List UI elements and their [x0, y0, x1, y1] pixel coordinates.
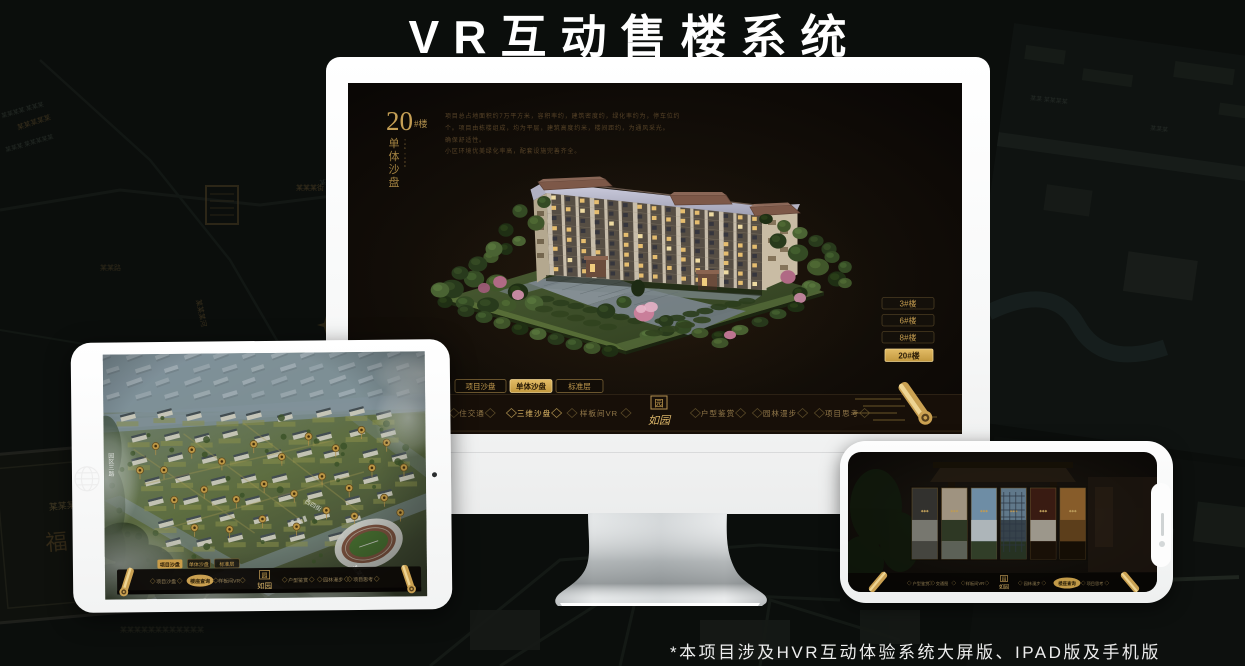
svg-text:样板间VR: 样板间VR — [218, 578, 240, 585]
svg-text:楼座查询: 楼座查询 — [190, 578, 210, 585]
svg-text:某某路: 某某路 — [100, 263, 121, 272]
svg-text:单体沙盘: 单体沙盘 — [189, 561, 209, 568]
svg-text:8#楼: 8#楼 — [900, 333, 917, 343]
svg-text:6#楼: 6#楼 — [900, 316, 917, 326]
svg-text:标准层: 标准层 — [219, 561, 234, 568]
svg-text:住交通: 住交通 — [459, 408, 485, 418]
svg-text:如园: 如园 — [257, 580, 272, 590]
svg-text:三维沙盘: 三维沙盘 — [517, 408, 551, 418]
svg-text:户型鉴赏: 户型鉴赏 — [913, 580, 930, 587]
svg-text:确保舒适性。: 确保舒适性。 — [445, 136, 486, 144]
svg-text:单体沙盘: 单体沙盘 — [516, 381, 546, 391]
svg-text:某某某某某某某某某某某某: 某某某某某某某某某某某某 — [120, 626, 204, 634]
svg-text:项目沙盘: 项目沙盘 — [466, 381, 496, 391]
svg-text:标准层: 标准层 — [568, 381, 591, 391]
svg-text:项目思考: 项目思考 — [825, 409, 859, 418]
svg-text:小区环境优美绿化率高，配套设施完善齐全。: 小区环境优美绿化率高，配套设施完善齐全。 — [445, 147, 581, 155]
svg-text:样板间VR: 样板间VR — [580, 408, 618, 418]
svg-text:楼座查询: 楼座查询 — [1058, 580, 1076, 587]
svg-text:沙: 沙 — [389, 163, 400, 176]
svg-text:E: E — [404, 146, 406, 150]
svg-text:园林漫步: 园林漫步 — [1024, 580, 1041, 587]
svg-text:项目思考: 项目思考 — [353, 577, 373, 583]
svg-text:户型鉴赏: 户型鉴赏 — [701, 408, 735, 418]
svg-text:3#楼: 3#楼 — [900, 299, 917, 309]
svg-text:单: 单 — [389, 137, 400, 150]
svg-text:如园: 如园 — [999, 584, 1009, 591]
svg-text:项目沙盘: 项目沙盘 — [160, 561, 180, 568]
svg-text:20#楼: 20#楼 — [898, 351, 919, 361]
svg-text:园: 园 — [654, 399, 663, 409]
svg-text:#楼: #楼 — [414, 118, 428, 129]
svg-text:如园: 如园 — [648, 414, 672, 427]
svg-text:体: 体 — [389, 149, 400, 163]
svg-text:盘: 盘 — [389, 175, 400, 189]
svg-text:园: 园 — [262, 572, 268, 579]
svg-text:样板间VR: 样板间VR — [966, 580, 984, 587]
svg-text:个。项目由栋楼组成，均为平层，建筑高度约米，楼间距约，为通风: 个。项目由栋楼组成，均为平层，建筑高度约米，楼间距约，为通风采光。 — [445, 124, 669, 132]
svg-text:项目总占地面积约7万平方米，容积率约，建筑密度约，绿化率约为: 项目总占地面积约7万平方米，容积率约，建筑密度约，绿化率约为，停车位约 — [445, 112, 680, 120]
svg-text:项目沙盘: 项目沙盘 — [156, 578, 176, 585]
svg-text:园林漫步: 园林漫步 — [763, 408, 797, 418]
svg-text:交通图: 交通图 — [936, 580, 949, 587]
svg-text:20: 20 — [386, 106, 413, 136]
svg-text:户型鉴赏: 户型鉴赏 — [288, 577, 308, 584]
svg-text:园林漫步: 园林漫步 — [323, 576, 343, 583]
